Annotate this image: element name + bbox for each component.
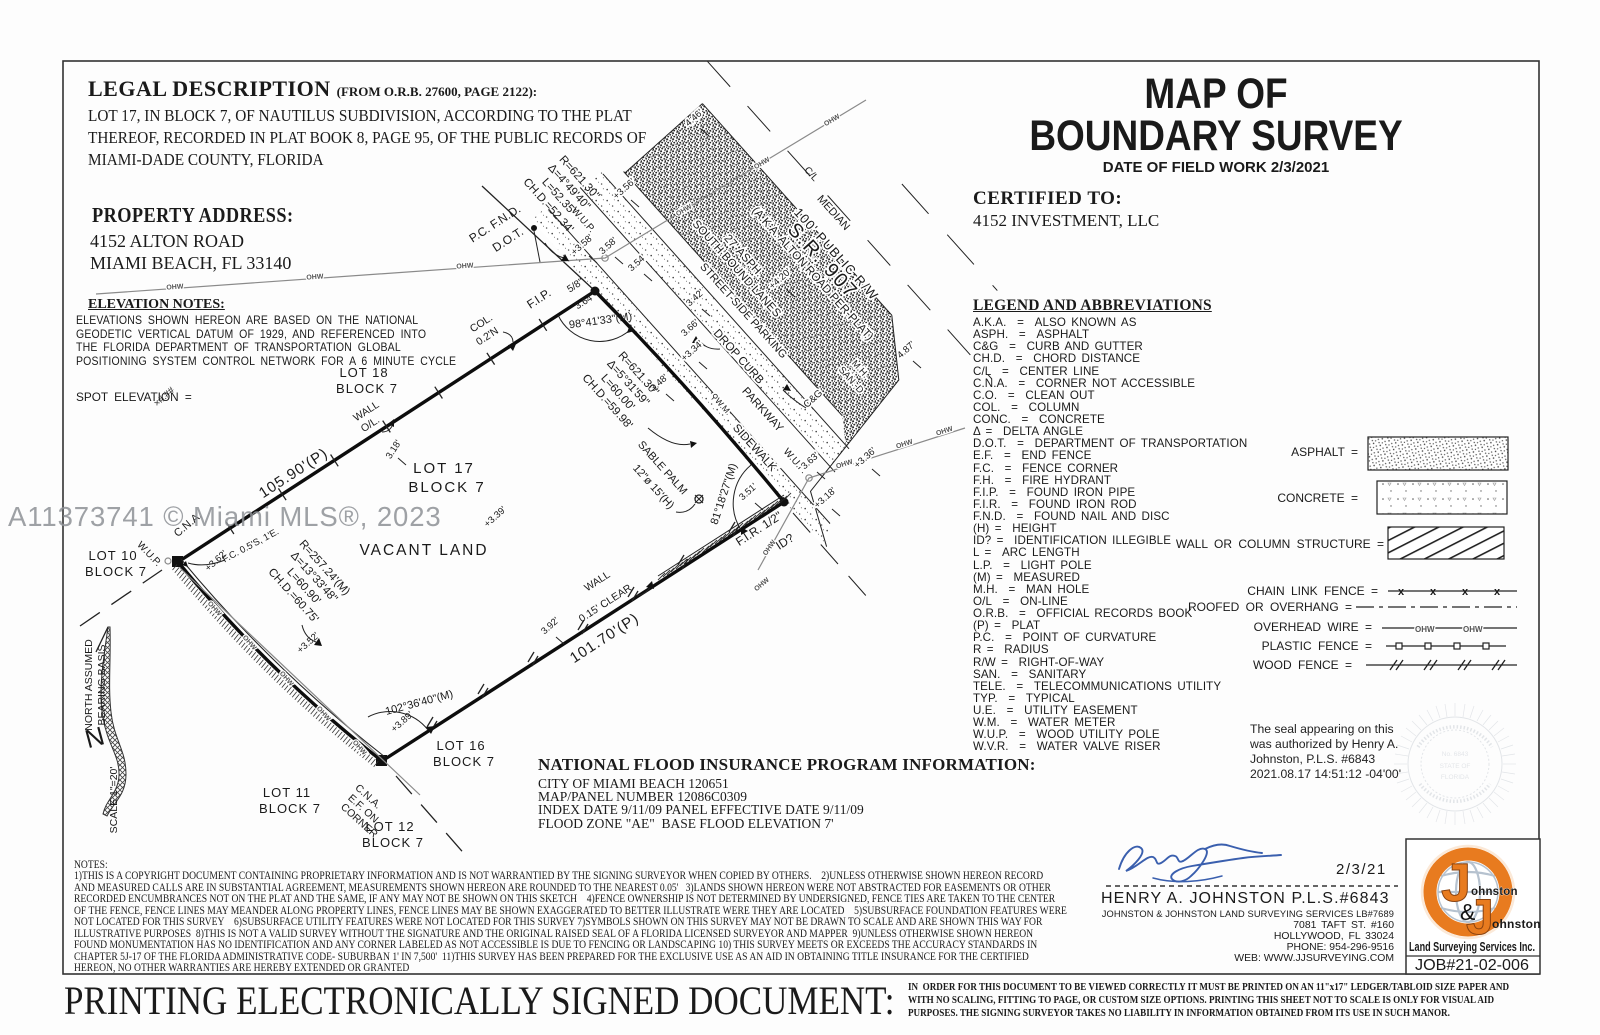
svg-text:OHW: OHW (835, 458, 854, 470)
svg-text:ASPHALT =: ASPHALT = (1291, 445, 1358, 459)
svg-text:4.87': 4.87' (895, 339, 918, 361)
svg-text:x: x (1462, 586, 1469, 598)
svg-text:OHW: OHW (823, 113, 842, 128)
svg-text:ID?: ID? (773, 531, 797, 553)
svg-text:OVERHEAD WIRE =: OVERHEAD WIRE = (1254, 620, 1372, 634)
svg-text:WALL: WALL (582, 569, 612, 595)
svg-text:NORTH ASSUMED: NORTH ASSUMED (83, 639, 95, 731)
svg-text:OHW: OHW (753, 576, 771, 593)
svg-text:ohnston: ohnston (1492, 917, 1541, 931)
svg-text:ohnston: ohnston (1471, 886, 1518, 898)
svg-text:OHW: OHW (315, 705, 332, 723)
svg-text:x: x (1494, 586, 1501, 598)
svg-text:LOT 11: LOT 11 (263, 785, 311, 800)
svg-text:OHW: OHW (456, 262, 474, 270)
svg-text:+3.39': +3.39' (482, 504, 509, 530)
svg-text:BLOCK 7: BLOCK 7 (433, 754, 495, 769)
svg-text:98°41'33"(M): 98°41'33"(M) (568, 311, 633, 332)
svg-text:105.90'(P): 105.90'(P) (256, 445, 331, 502)
svg-text:OHW: OHW (895, 438, 914, 450)
svg-text:x: x (1430, 586, 1437, 598)
svg-text:OHW: OHW (306, 273, 324, 281)
svg-text:BLOCK 7: BLOCK 7 (259, 801, 321, 816)
svg-text:PLASTIC FENCE =: PLASTIC FENCE = (1262, 639, 1372, 653)
svg-text:CONCRETE =: CONCRETE = (1277, 491, 1358, 505)
svg-text:OHW: OHW (166, 283, 184, 291)
svg-text:LOT 16: LOT 16 (436, 738, 485, 753)
svg-text:x: x (1398, 586, 1405, 598)
svg-text:+3.36': +3.36' (852, 445, 879, 471)
svg-text:C/L: C/L (802, 165, 821, 184)
svg-text:JOB#21-02-006: JOB#21-02-006 (1415, 957, 1529, 974)
svg-text:BLOCK 7: BLOCK 7 (408, 479, 485, 496)
svg-text:STATE OF: STATE OF (1440, 763, 1471, 770)
svg-text:WOOD FENCE =: WOOD FENCE = (1253, 658, 1352, 672)
svg-text:+3.34': +3.34' (679, 338, 706, 364)
svg-text:Land Surveying Services Inc.: Land Surveying Services Inc. (1409, 940, 1535, 954)
svg-text:3.58': 3.58' (597, 235, 620, 257)
svg-text:OHW: OHW (1463, 625, 1483, 634)
svg-text:BLOCK 7: BLOCK 7 (85, 564, 147, 579)
svg-text:BEARING BASIS: BEARING BASIS (96, 644, 108, 725)
svg-text:3.18': 3.18' (384, 438, 404, 461)
svg-text:No. 6843: No. 6843 (1442, 751, 1469, 758)
svg-text:3.92': 3.92' (539, 615, 562, 637)
svg-text:102°36'40"(M): 102°36'40"(M) (384, 688, 454, 718)
svg-text:3.66': 3.66' (679, 317, 702, 339)
svg-text:BLOCK 7: BLOCK 7 (336, 381, 398, 396)
svg-text:FLORIDA: FLORIDA (1441, 774, 1470, 781)
svg-text:LOT 17: LOT 17 (413, 460, 475, 477)
svg-text:3.51': 3.51' (737, 481, 760, 503)
svg-text:OHW: OHW (1415, 625, 1435, 634)
svg-text:&: & (1460, 899, 1475, 925)
svg-text:VACANT LAND: VACANT LAND (359, 542, 488, 559)
svg-text:SCALE 1"=20': SCALE 1"=20' (108, 767, 120, 834)
svg-text:LOT 10: LOT 10 (88, 548, 137, 563)
svg-text:CHAIN LINK FENCE =: CHAIN LINK FENCE = (1247, 584, 1378, 598)
svg-text:+3.18': +3.18' (812, 485, 839, 511)
svg-text:F.I.P.: F.I.P. (524, 286, 553, 312)
svg-text:OHW: OHW (935, 425, 954, 437)
